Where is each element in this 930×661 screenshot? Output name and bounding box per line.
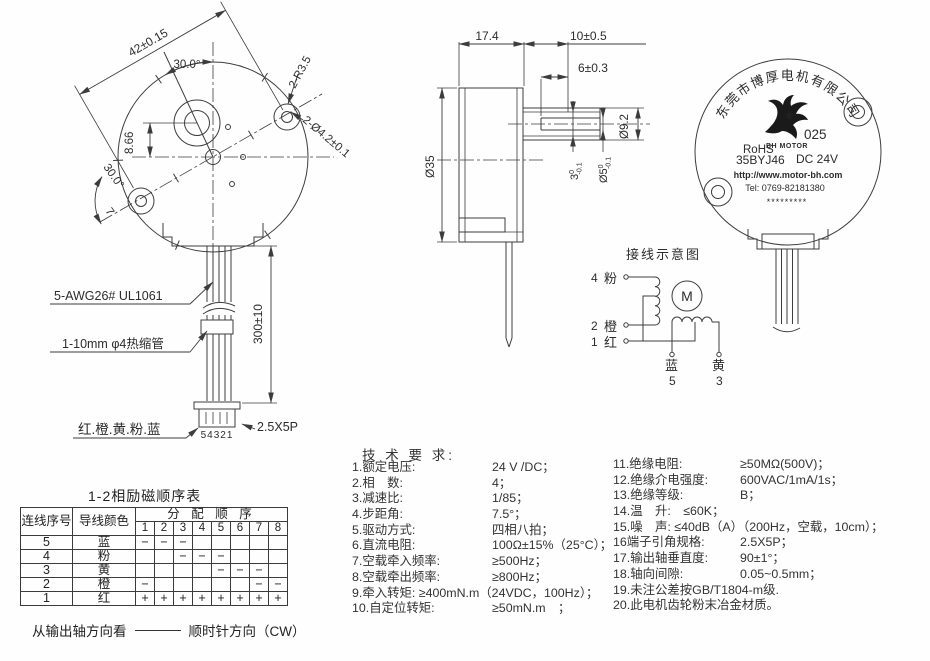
coil-a	[655, 277, 660, 325]
tech-item: 4.步距角:7.5°；	[352, 507, 614, 523]
tech-item-label: 1.额定电压:	[352, 460, 492, 476]
tech-item: 14.温 升: ≤60K；	[613, 504, 930, 520]
tech-item-label: 13.绝缘等级:	[613, 488, 740, 504]
step-header: 6	[231, 522, 250, 536]
tech-item-value: 1/85；	[492, 491, 614, 507]
table-cell: 4	[21, 550, 73, 564]
table-cell: −	[136, 536, 155, 550]
table-cell: 粉	[73, 550, 136, 564]
table-cell	[269, 564, 288, 578]
motor-symbol-label: M	[681, 288, 693, 304]
dim-body-length-label: 17.4	[475, 29, 499, 43]
table-cell	[174, 564, 193, 578]
step-header: 3	[174, 522, 193, 536]
dim-flat-length-label: 6±0.3	[578, 61, 608, 75]
wiring-title: 接线示意图	[626, 247, 701, 262]
wire2-color: 橙	[604, 319, 617, 334]
table-cell: +	[269, 592, 288, 606]
tech-item-value: ≥50mN.m ；	[492, 601, 614, 617]
table-cell: 蓝	[73, 536, 136, 550]
coil-b	[672, 317, 712, 322]
tech-item-value: 0.05~0.5mm；	[740, 567, 930, 583]
tech-item-value: 100Ω±15%（25°C）；	[492, 538, 614, 554]
wire5-color: 蓝	[665, 358, 678, 373]
dim-body-dia-label: Ø35	[423, 155, 437, 178]
tech-item: 15.噪 声: ≤40dB（A）（200Hz，空载，10cm）；	[613, 520, 930, 536]
tech-list-left: 1.额定电压:24 V /DC；2.相 数:4；3.减速比:1/85；4.步距角…	[352, 460, 614, 617]
col-header-wire-no: 连线序号	[21, 508, 73, 536]
table-cell	[193, 578, 212, 592]
dim-angle-left-label: 30.0°	[101, 162, 126, 191]
wire-spec-label: 5-AWG26# UL1061	[54, 289, 163, 303]
tech-item-label: 4.步距角:	[352, 507, 492, 523]
wire3-color: 黄	[712, 358, 725, 373]
tech-item-label: 9.牵入转矩: ≥400mN.m（24VDC，100Hz）；	[352, 586, 598, 602]
tube-spec-label: 1-10mm φ4热缩管	[62, 336, 164, 351]
table-cell	[136, 564, 155, 578]
dim-shaft-length-label: 10±0.5	[570, 29, 607, 43]
tech-item: 9.牵入转矩: ≥400mN.m（24VDC，100Hz）；	[352, 586, 614, 602]
tech-item: 5.驱动方式:四相八拍；	[352, 523, 614, 539]
table-cell	[250, 536, 269, 550]
dim-flat-tol-label: 30-0.1	[569, 162, 584, 180]
table-row: 3黄−−−	[21, 564, 288, 578]
table-cell	[136, 550, 155, 564]
dim-7-label: 7	[103, 206, 117, 218]
table-row: 5蓝−−−	[21, 536, 288, 550]
table-cell: +	[250, 592, 269, 606]
table-cell	[155, 578, 174, 592]
table-cell	[212, 536, 231, 550]
tech-item: 13.绝缘等级:B；	[613, 488, 930, 504]
connector-spec-label: 2.5X5P	[257, 420, 298, 434]
table-cell: −	[269, 578, 288, 592]
table-cell: −	[250, 578, 269, 592]
table-cell: +	[193, 592, 212, 606]
tech-item-label: 7.空载牵入频率:	[352, 554, 492, 570]
sequence-table-title: 1-2相励磁顺序表	[88, 486, 201, 506]
tech-item-value: ≥50MΩ(500V)；	[740, 457, 930, 473]
registered-mark: ®	[786, 111, 793, 121]
table-cell: 3	[21, 564, 73, 578]
table-row: 4粉−−−	[21, 550, 288, 564]
tech-item-value: ≥800Hz；	[492, 570, 614, 586]
tech-item-value	[598, 586, 614, 602]
front-view	[100, 42, 334, 427]
tech-item-label: 18.轴向间隙:	[613, 567, 740, 583]
table-cell: +	[212, 592, 231, 606]
tech-item-label: 10.自定位转矩:	[352, 601, 492, 617]
table-cell: 5	[21, 536, 73, 550]
tech-item: 12.绝缘介电强度:600VAC/1mA/1s；	[613, 473, 930, 489]
table-cell: 2	[21, 578, 73, 592]
dim-shaft-dia-tol-label: Ø50-0.1	[598, 157, 613, 183]
tech-item: 6.直流电阻:100Ω±15%（25°C）；	[352, 538, 614, 554]
tech-item: 20.此电机齿轮粉末冶金材质。	[613, 598, 930, 614]
table-cell: −	[174, 550, 193, 564]
tech-item-value	[740, 504, 930, 520]
dim-radius-label: 2-R3.5	[287, 54, 314, 90]
table-cell: +	[155, 592, 174, 606]
rotation-note-left: 从输出轴方向看	[32, 620, 127, 640]
tech-item-label: 5.驱动方式:	[352, 523, 492, 539]
step-header: 7	[250, 522, 269, 536]
tech-item-value	[779, 583, 930, 599]
table-cell	[155, 564, 174, 578]
wire4-color: 粉	[604, 271, 617, 286]
tech-item: 7.空载牵入频率:≥500Hz；	[352, 554, 614, 570]
table-cell: +	[174, 592, 193, 606]
tech-item-label: 3.减速比:	[352, 491, 492, 507]
table-cell: −	[174, 536, 193, 550]
side-view-dimensions	[437, 42, 646, 242]
dim-866-label: 8.66	[124, 132, 136, 154]
table-cell: 1	[21, 592, 73, 606]
tech-item-value	[779, 598, 930, 614]
wire4-number: 4	[591, 271, 598, 285]
table-cell	[212, 578, 231, 592]
step-header: 2	[155, 522, 174, 536]
tech-item-label: 20.此电机齿轮粉末冶金材质。	[613, 598, 779, 614]
tech-item-label: 6.直流电阻:	[352, 538, 492, 554]
table-cell	[174, 578, 193, 592]
tech-item-value: 四相八拍；	[492, 523, 614, 539]
model-label: 35BYJ46	[736, 153, 785, 167]
dim-42-label: 42±0.15	[126, 25, 171, 59]
tech-item-label: 15.噪 声: ≤40dB（A）（200Hz，空载，10cm）；	[613, 520, 884, 536]
tech-item-value: 24 V /DC；	[492, 460, 614, 476]
wire1-color: 红	[604, 335, 617, 350]
tech-item-label: 16端子引角规格:	[613, 535, 740, 551]
tech-item: 3.减速比:1/85；	[352, 491, 614, 507]
table-cell: −	[231, 564, 250, 578]
tech-item: 16端子引角规格:2.5X5P；	[613, 535, 930, 551]
tech-item-label: 11.绝缘电阻:	[613, 457, 740, 473]
tech-item: 2.相 数:4；	[352, 476, 614, 492]
pin-numbers-label: 54321	[201, 430, 234, 441]
rotation-note: 从输出轴方向看 顺时针方向（CW）	[32, 620, 306, 640]
table-row: 2橙−−−	[21, 578, 288, 592]
tech-item: 19.未注公差按GB/T1804-m级.	[613, 583, 930, 599]
stars-label: *********	[767, 197, 808, 207]
tech-item-value: B；	[740, 488, 930, 504]
table-cell	[269, 550, 288, 564]
table-cell: 橙	[73, 578, 136, 592]
table-cell	[231, 536, 250, 550]
step-header: 8	[269, 522, 288, 536]
table-cell	[269, 536, 288, 550]
drawing-labels: 42±0.15 30.0° 8.66 30.0° 7 2-R3.5 2-Ø4.2…	[54, 25, 863, 441]
tech-item-value: 600VAC/1mA/1s；	[740, 473, 930, 489]
wire3-number: 3	[716, 374, 723, 388]
table-cell: 红	[73, 592, 136, 606]
wiring-diagram	[624, 275, 721, 357]
engineering-drawing-sheet: 42±0.15 30.0° 8.66 30.0° 7 2-R3.5 2-Ø4.2…	[0, 0, 930, 661]
table-row: 1红++++++++	[21, 592, 288, 606]
step-header: 5	[212, 522, 231, 536]
note-dash-line	[135, 630, 181, 631]
tech-item-label: 2.相 数:	[352, 476, 492, 492]
col-header-wire-color: 导线颜色	[73, 508, 136, 536]
logo-code-label: 025	[804, 127, 827, 142]
sequence-table-rows: 5蓝−−−4粉−−−3黄−−−2橙−−−1红++++++++	[21, 536, 288, 606]
dim-angle-top-label: 30.0°	[174, 59, 201, 71]
rotation-note-right: 顺时针方向（CW）	[189, 620, 306, 640]
dim-boss-dia-label: Ø9.2	[619, 114, 631, 139]
tech-item: 11.绝缘电阻:≥50MΩ(500V)；	[613, 457, 930, 473]
table-cell: −	[155, 536, 174, 550]
col-header-sequence: 分 配 顺 序	[136, 508, 288, 522]
tech-item-label: 19.未注公差按GB/T1804-m级.	[613, 583, 779, 599]
tech-item: 1.额定电压:24 V /DC；	[352, 460, 614, 476]
tech-item-label: 14.温 升: ≤60K；	[613, 504, 740, 520]
table-cell: −	[136, 578, 155, 592]
step-header: 1	[136, 522, 155, 536]
url-label: http://www.motor-bh.com	[734, 170, 843, 180]
table-cell: −	[193, 550, 212, 564]
tel-label: Tel: 0769-82181380	[745, 183, 825, 193]
wire5-number: 5	[669, 374, 676, 388]
table-cell: 黄	[73, 564, 136, 578]
table-cell: −	[212, 564, 231, 578]
tech-item-label: 12.绝缘介电强度:	[613, 473, 740, 489]
tech-item: 18.轴向间隙:0.05~0.5mm；	[613, 567, 930, 583]
tech-item: 10.自定位转矩:≥50mN.m ；	[352, 601, 614, 617]
table-cell: −	[250, 564, 269, 578]
voltage-label: DC 24V	[796, 152, 838, 166]
table-cell	[155, 550, 174, 564]
wire-length-label: 300±10	[251, 304, 265, 344]
wire1-number: 1	[591, 335, 598, 349]
tech-list-right: 11.绝缘电阻:≥50MΩ(500V)；12.绝缘介电强度:600VAC/1mA…	[613, 457, 930, 614]
tech-item-value: 2.5X5P；	[740, 535, 930, 551]
tech-item-value	[884, 520, 930, 536]
tech-item: 8.空载牵出频率:≥800Hz；	[352, 570, 614, 586]
tech-item-value: 90±1°；	[740, 551, 930, 567]
tech-item-label: 17.输出轴垂直度:	[613, 551, 740, 567]
table-cell: +	[136, 592, 155, 606]
wire2-number: 2	[591, 319, 598, 333]
table-cell	[250, 550, 269, 564]
table-cell: +	[231, 592, 250, 606]
tech-item-value: 7.5°；	[492, 507, 614, 523]
table-cell	[193, 536, 212, 550]
table-cell	[231, 578, 250, 592]
excitation-sequence-table: 连线序号 导线颜色 分 配 顺 序 12345678 5蓝−−−4粉−−−3黄−…	[20, 507, 288, 606]
tech-item: 17.输出轴垂直度:90±1°；	[613, 551, 930, 567]
step-header: 4	[193, 522, 212, 536]
tech-item-value: 4；	[492, 476, 614, 492]
wire-colors-label: 红.橙.黄.粉.蓝	[78, 422, 161, 437]
table-cell	[231, 550, 250, 564]
table-cell: −	[212, 550, 231, 564]
table-cell	[193, 564, 212, 578]
tech-item-value: ≥500Hz；	[492, 554, 614, 570]
tech-item-label: 8.空载牵出频率:	[352, 570, 492, 586]
